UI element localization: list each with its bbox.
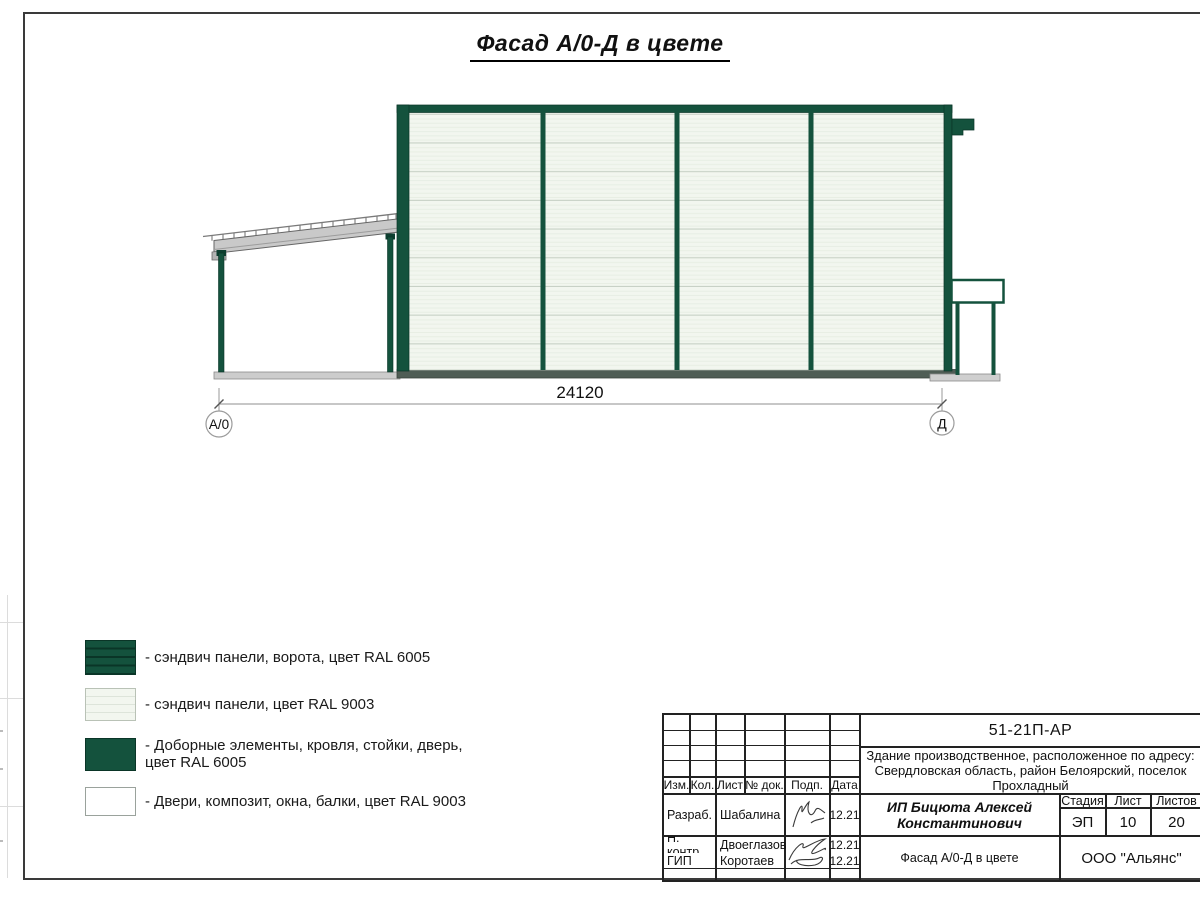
mullion-3 <box>809 112 814 370</box>
left-margin-line <box>0 622 23 623</box>
signer-name: Коротаев <box>717 852 787 869</box>
legend-swatch-trim <box>85 738 136 771</box>
left-margin-tick <box>0 730 3 732</box>
col-header-izm: Изм. <box>664 777 689 793</box>
corner-post-left <box>397 105 409 371</box>
signer-role: ГИП <box>664 852 718 869</box>
doc-number: 51-21П-АР <box>859 715 1200 746</box>
sheets-value: 20 <box>1151 809 1200 835</box>
company-name: ООО "Альянс" <box>1061 837 1200 879</box>
legend-item-gate: - сэндвич панели, ворота, цвет RAL 6005 <box>85 640 645 674</box>
legend-label-line1: - Доборные элементы, кровля, стойки, две… <box>145 737 463 754</box>
legend-item-wall: - сэндвич панели, цвет RAL 9003 <box>85 688 645 720</box>
client-name: ИП Бицюта Алексей Константинович <box>860 794 1059 835</box>
client-line2: Константинович <box>897 815 1022 831</box>
left-margin-tick <box>0 840 3 842</box>
title-block: Изм. Кол. Лист № док. Подп. Дата Разраб.… <box>662 713 1200 882</box>
legend-label: - сэндвич панели, цвет RAL 9003 <box>145 696 374 713</box>
stage-value: ЭП <box>1060 809 1105 835</box>
legend-swatch-door <box>85 787 136 816</box>
legend-item-trim: - Доборные элементы, кровля, стойки, две… <box>85 738 645 770</box>
address-line2: Свердловская область, район Белоярский, … <box>875 763 1187 778</box>
signature-nkontr-gip <box>785 836 831 869</box>
roof-edge <box>397 105 952 113</box>
mullion-2 <box>675 112 680 370</box>
base-strip-left <box>214 372 400 379</box>
col-header-doc: № док. <box>745 777 784 793</box>
left-margin-line <box>0 806 23 807</box>
signature-razrab <box>787 797 829 833</box>
signer-date: 12.21 <box>830 794 859 835</box>
legend-label: - Доборные элементы, кровля, стойки, две… <box>145 737 463 771</box>
legend-swatch-wall <box>85 688 136 721</box>
legend-label-line2: цвет RAL 6005 <box>145 754 246 771</box>
legend-swatch-gate <box>85 640 136 675</box>
left-margin-line <box>0 698 23 699</box>
signer-name: Двоеглазов <box>717 836 787 853</box>
stamp-sheet-title: Фасад А/0-Д в цвете <box>860 837 1059 879</box>
address-line1: Здание производственное, расположенное п… <box>866 748 1194 763</box>
corner-post-right <box>944 105 952 371</box>
axis-label-right: Д <box>937 416 947 432</box>
col-header-list: Лист <box>716 777 744 793</box>
axis-label-left: А/0 <box>209 417 229 432</box>
address-line3: Прохладный <box>992 778 1068 793</box>
gutter-outlet <box>952 119 974 135</box>
entrance-post-right <box>992 302 996 375</box>
mullion-1 <box>541 112 546 370</box>
stage-label: Стадия <box>1060 794 1105 807</box>
signer-name: Шабалина <box>717 794 787 835</box>
legend-label: - Двери, композит, окна, балки, цвет RAL… <box>145 793 466 810</box>
legend-label: - сэндвич панели, ворота, цвет RAL 6005 <box>145 649 430 666</box>
entrance-canopy <box>952 280 1004 303</box>
legend-item-door: - Двери, композит, окна, балки, цвет RAL… <box>85 787 645 815</box>
sheet-value: 10 <box>1106 809 1150 835</box>
col-header-data: Дата <box>830 777 859 793</box>
signer-role: Разраб. <box>664 794 718 835</box>
canopy-column-right <box>388 237 394 372</box>
client-line1: ИП Бицюта Алексей <box>887 799 1032 815</box>
left-margin-line <box>7 595 8 878</box>
base-strip-main <box>397 370 957 379</box>
col-header-podp: Подп. <box>785 777 829 793</box>
dimension-text: 24120 <box>556 383 603 402</box>
project-address: Здание производственное, расположенное п… <box>859 747 1200 793</box>
left-margin-tick <box>0 768 3 770</box>
facade-drawing: 24120 А/0 Д <box>0 0 1200 470</box>
signer-date: 12.21 <box>830 852 859 869</box>
signer-role: Н. контр. <box>664 836 718 853</box>
base-strip-right <box>930 374 1000 381</box>
canopy-column-left <box>219 253 225 372</box>
sheets-label: Листов <box>1151 794 1200 807</box>
sheet-label: Лист <box>1106 794 1150 807</box>
entrance-post-left <box>956 302 960 375</box>
col-header-kol: Кол. <box>690 777 715 793</box>
signer-date: 12.21 <box>830 836 859 853</box>
